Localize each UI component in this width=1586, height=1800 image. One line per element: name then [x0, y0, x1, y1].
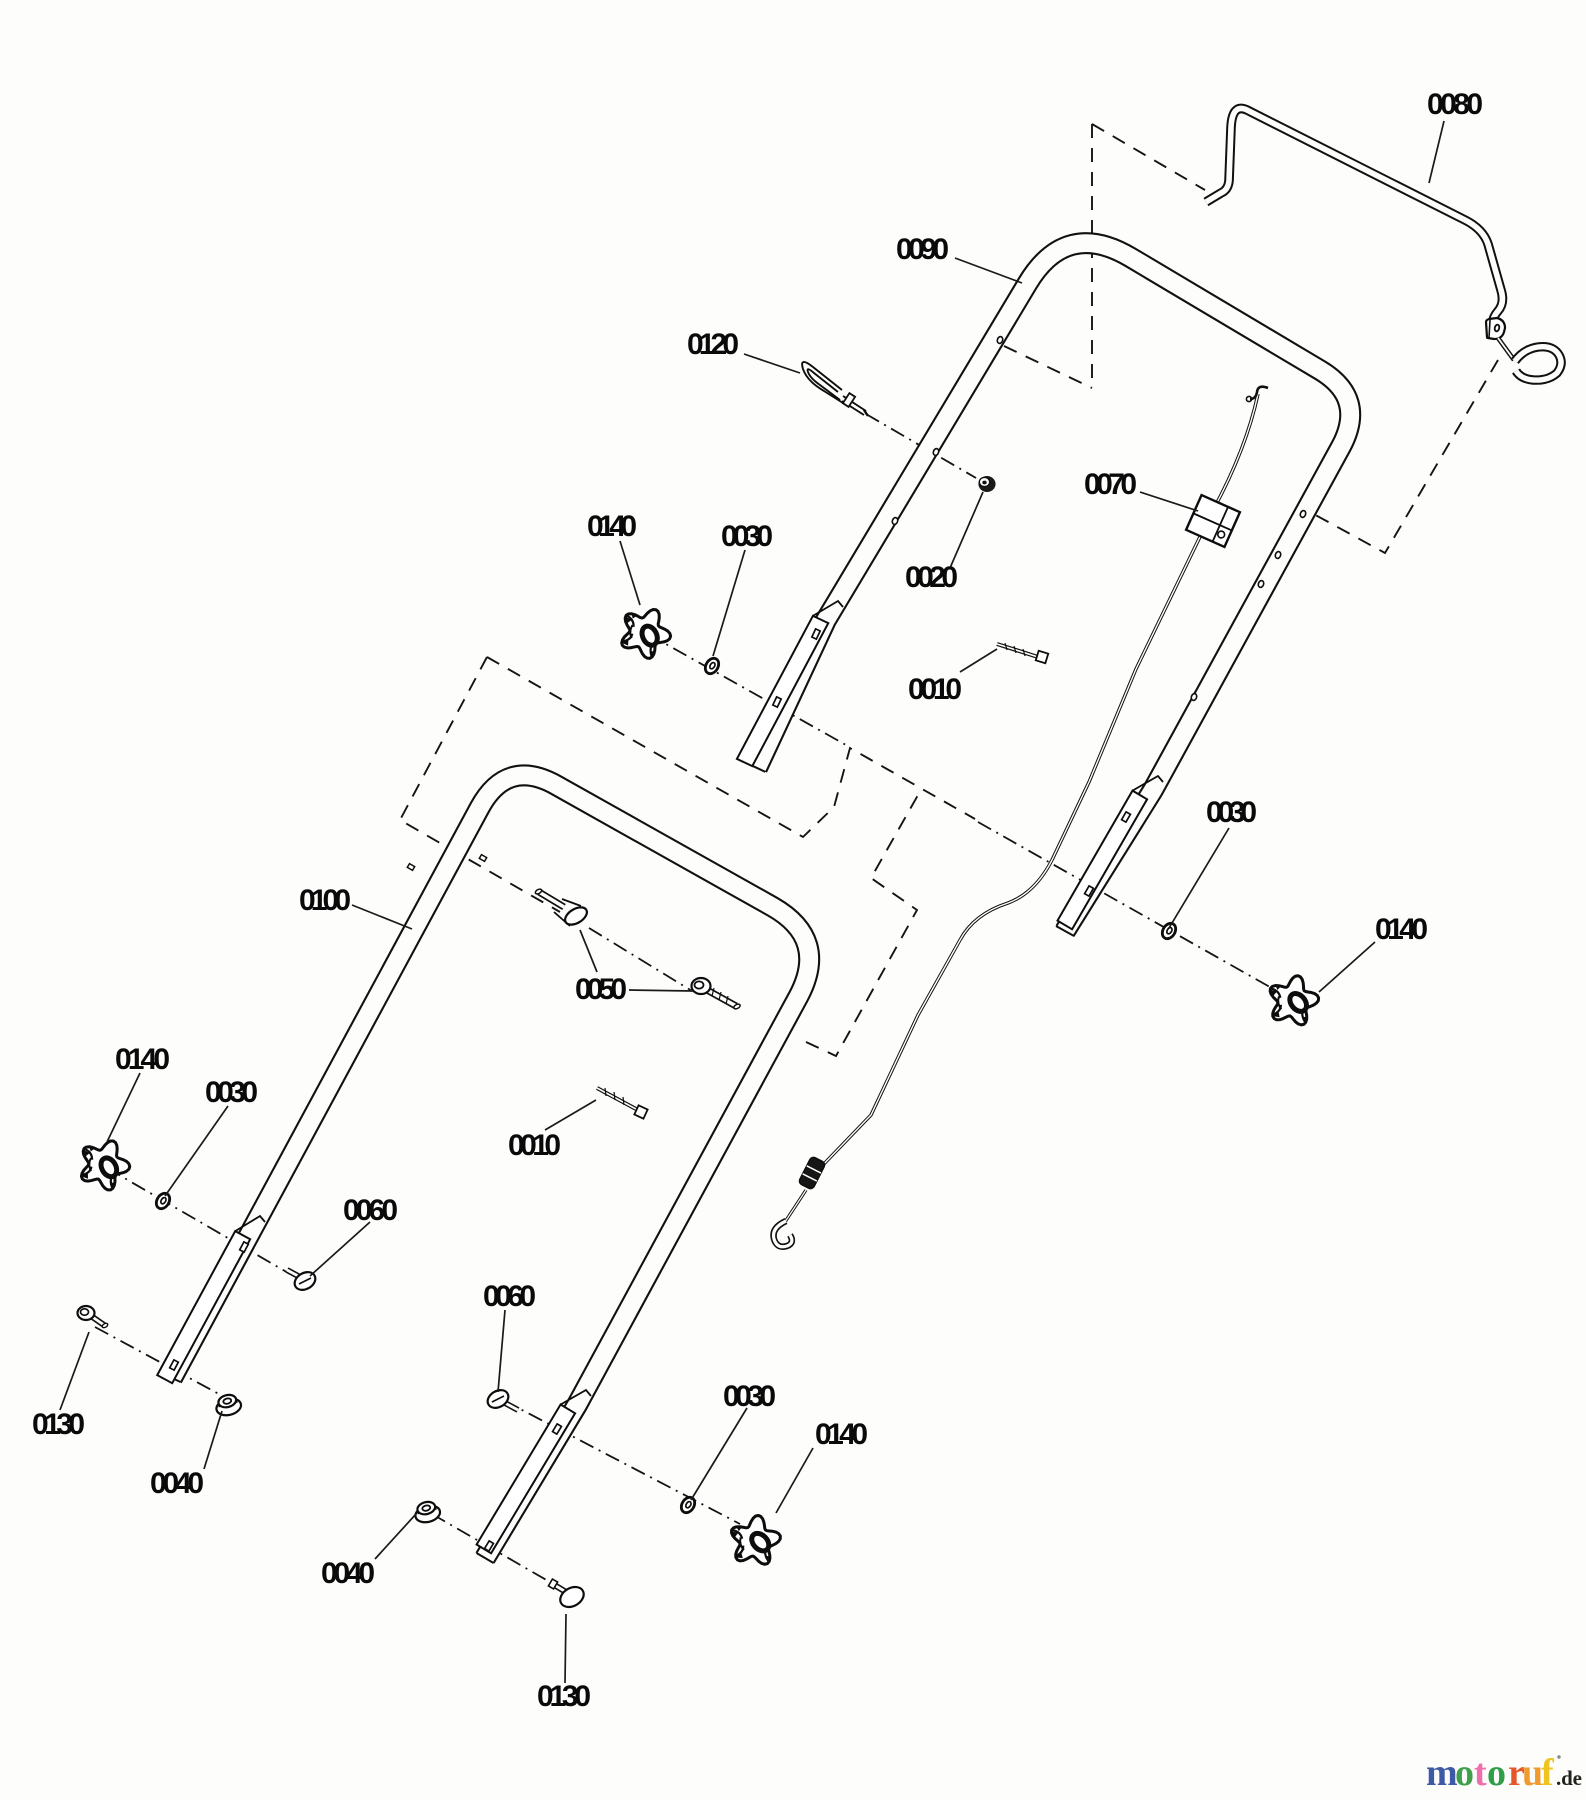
svg-text:0050: 0050	[575, 973, 627, 1006]
svg-text:0090: 0090	[896, 233, 949, 266]
svg-text:0140: 0140	[815, 1418, 868, 1451]
svg-text:0030: 0030	[205, 1076, 258, 1109]
svg-text:0040: 0040	[321, 1557, 375, 1590]
svg-text:.de: .de	[1556, 1766, 1582, 1790]
svg-text:0070: 0070	[1084, 468, 1137, 501]
svg-text:0030: 0030	[721, 520, 773, 553]
svg-text:0100: 0100	[299, 884, 351, 917]
svg-text:0120: 0120	[687, 328, 739, 361]
svg-text:0140: 0140	[115, 1043, 170, 1076]
svg-text:0030: 0030	[1206, 796, 1257, 829]
svg-text:0080: 0080	[1427, 88, 1483, 121]
svg-text:o: o	[1455, 1752, 1474, 1794]
svg-text:0130: 0130	[537, 1680, 591, 1713]
svg-text:0140: 0140	[587, 510, 637, 543]
svg-text:m: m	[1426, 1752, 1458, 1794]
svg-text:0140: 0140	[1375, 913, 1428, 946]
svg-text:0010: 0010	[508, 1129, 561, 1162]
svg-text:0010: 0010	[908, 673, 962, 706]
svg-text:u: u	[1522, 1752, 1543, 1794]
svg-text:0040: 0040	[150, 1467, 204, 1500]
svg-text:0060: 0060	[343, 1194, 398, 1227]
svg-text:0030: 0030	[723, 1380, 776, 1413]
svg-text:o: o	[1487, 1752, 1506, 1794]
svg-text:f: f	[1541, 1752, 1555, 1794]
svg-text:t: t	[1474, 1752, 1487, 1794]
svg-text:0060: 0060	[483, 1280, 536, 1313]
svg-text:0020: 0020	[905, 561, 958, 594]
svg-text:0130: 0130	[32, 1408, 85, 1441]
